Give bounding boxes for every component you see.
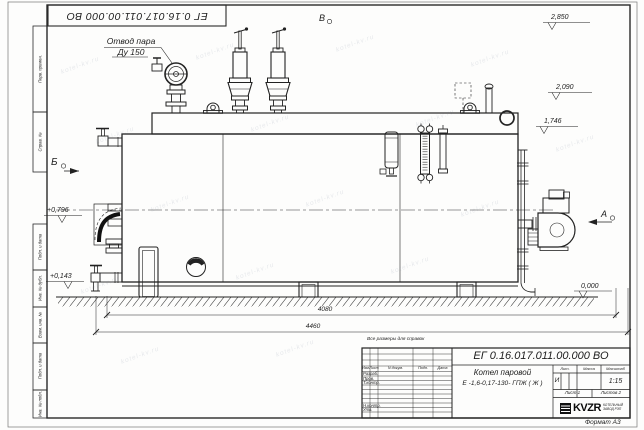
drawing-linework <box>0 0 644 430</box>
margin-label-perv-primen: Перв. примен. <box>38 55 43 83</box>
drawing-sheet: kotel-kv.ru kotel-kv.ru kotel-kv.ru kote… <box>0 0 644 430</box>
sheets-value: Листов 2 <box>592 390 630 397</box>
col-data: Дата <box>433 367 452 372</box>
dimension-4080: 4080 <box>300 307 350 314</box>
safety-valve <box>228 27 290 113</box>
support-legs <box>139 247 476 297</box>
sheet-value: Лист 1 <box>553 390 592 397</box>
water-level-gauges <box>380 124 448 184</box>
titleblock-product-name: Котел паровой <box>452 368 553 378</box>
elevation-0000: 0,000 <box>581 283 599 290</box>
scale-value: 1:15 <box>601 376 630 386</box>
margin-label-podp-data-2: Подп. и дата <box>38 353 43 379</box>
steam-collector-band <box>152 113 518 134</box>
view-label-v: В <box>319 14 325 23</box>
manhole <box>187 258 206 277</box>
col-ndocum: N докум. <box>378 367 413 372</box>
elevation-2850: 2,850 <box>551 14 569 21</box>
top-right-fittings <box>455 83 514 125</box>
logo-mark-icon <box>560 403 571 414</box>
row-utv: Утв. <box>363 408 373 412</box>
steam-outlet-label-line1: Отвод пара <box>100 37 162 46</box>
view-label-b: Б <box>51 158 58 168</box>
elevation-0143: +0,143 <box>50 273 72 280</box>
steam-outlet-valve <box>152 58 187 113</box>
elevation-0796: +0,796 <box>47 207 69 214</box>
logo-subtitle-line2: ЗАВОД РЭП <box>603 407 621 411</box>
elevation-marks <box>44 23 612 299</box>
steam-outlet-label-line2: Ду 150 <box>100 48 162 56</box>
elevation-2090: 2,090 <box>556 84 574 91</box>
header-masshtab: Масштаб <box>601 366 630 372</box>
margin-label-sprav-no: Справ. № <box>38 132 43 151</box>
view-label-a: А <box>601 210 607 219</box>
litera-value: И <box>551 376 563 386</box>
top-doc-number: ЕГ 0.16.017.011.00.000 ВО <box>48 5 226 26</box>
margin-label-vzam-inv: Взам. инв. № <box>38 312 43 338</box>
manufacturer-logo: KVZR КОТЕЛЬНЫЙЗАВОД РЭП <box>553 398 630 418</box>
reference-note: Все размеры для справок <box>367 338 424 343</box>
logo-subtitle: КОТЕЛЬНЫЙЗАВОД РЭП <box>603 404 623 411</box>
header-massa: Масса <box>577 366 601 372</box>
margin-label-inv-dubl: Инв. № дубл. <box>38 275 43 301</box>
dimension-4460: 4460 <box>288 324 338 331</box>
titleblock-product-code: Е -1,6-0,17-130- ГПЖ ( Ж ) <box>452 380 553 389</box>
format-label: Формат А3 <box>585 420 621 427</box>
margin-label-inv-podl: Инв. № подл. <box>38 391 43 417</box>
titleblock-doc-number: ЕГ 0.16.017.011.00.000 ВО <box>452 350 630 363</box>
burner-assembly <box>94 204 122 253</box>
header-lit: Лит. <box>553 366 577 372</box>
ground-line <box>56 297 598 307</box>
col-podp: Подп. <box>413 367 433 372</box>
logo-name: KVZR <box>573 402 601 414</box>
row-tkontr: Т.контр. <box>363 381 380 385</box>
dimension-lines <box>93 288 631 335</box>
sheet-frame <box>8 2 637 427</box>
feed-pump <box>518 190 575 251</box>
margin-label-podp-data-1: Подп. и дата <box>38 234 43 260</box>
elevation-1746: 1,746 <box>544 118 562 125</box>
